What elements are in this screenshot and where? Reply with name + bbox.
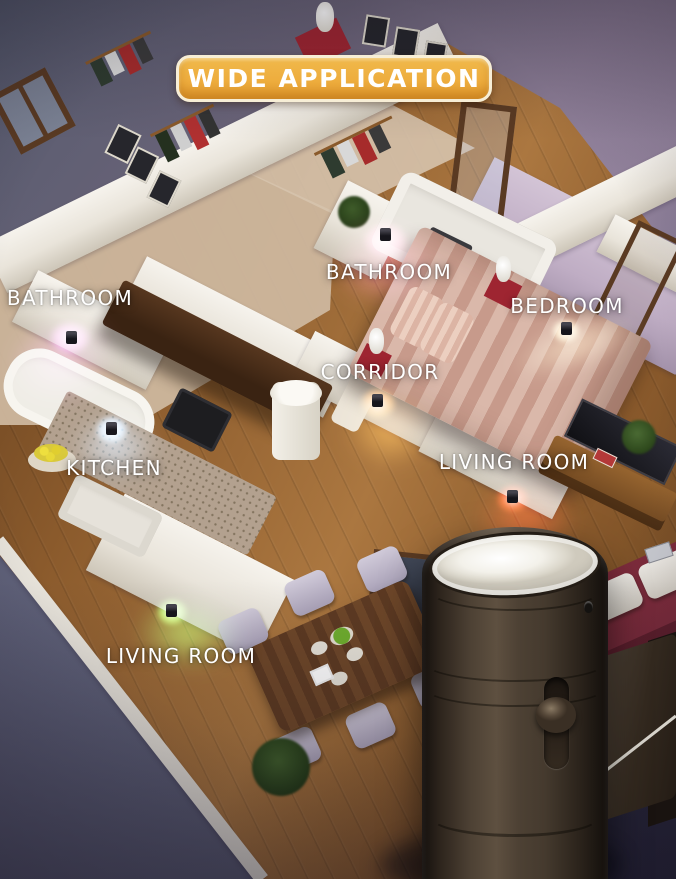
dining-table (245, 578, 443, 734)
nightlight-fixture (372, 394, 383, 407)
table-lamp-white (316, 2, 334, 32)
room-label-kitchen: KITCHEN (66, 456, 162, 480)
nightlight-fixture (66, 331, 77, 344)
wide-application-banner: WIDE APPLICATION (176, 55, 492, 102)
plant (622, 420, 656, 454)
nightlight-fixture (106, 422, 117, 435)
product-sensor-dot (584, 601, 593, 613)
closet-clothes (83, 27, 172, 109)
window-frame (0, 67, 76, 154)
room-label-bathroom-left: BATHROOM (7, 286, 133, 310)
planter-top (270, 380, 322, 406)
nightlight-fixture (507, 490, 518, 503)
product-night-light-body (422, 527, 608, 879)
table-lamp-white (496, 256, 511, 282)
room-label-bedroom: BEDROOM (510, 294, 624, 318)
product-rim-seam (426, 565, 604, 611)
nightlight-fixture (561, 322, 572, 335)
product-slider-knob[interactable] (536, 697, 576, 733)
room-label-bathroom-center: BATHROOM (326, 260, 452, 284)
product-body-seam (423, 667, 607, 707)
nightlight-glow-living-bottom (113, 580, 263, 685)
room-label-living-room-right: LIVING ROOM (439, 450, 589, 474)
room-label-living-room-bottom: LIVING ROOM (106, 644, 256, 668)
table-lamp-white (369, 328, 384, 354)
product-plug-bracket (596, 633, 676, 823)
nightlight-fixture (380, 228, 391, 241)
picture-frame (362, 14, 390, 47)
scene-apartment-floorplan: BATHROOM BATHROOM BEDROOM CORRIDOR KITCH… (0, 0, 676, 879)
banner-label: WIDE APPLICATION (179, 58, 489, 99)
room-label-corridor: CORRIDOR (321, 360, 440, 384)
plant (252, 738, 310, 796)
product-body-seam (430, 797, 600, 837)
nightlight-fixture (166, 604, 177, 617)
